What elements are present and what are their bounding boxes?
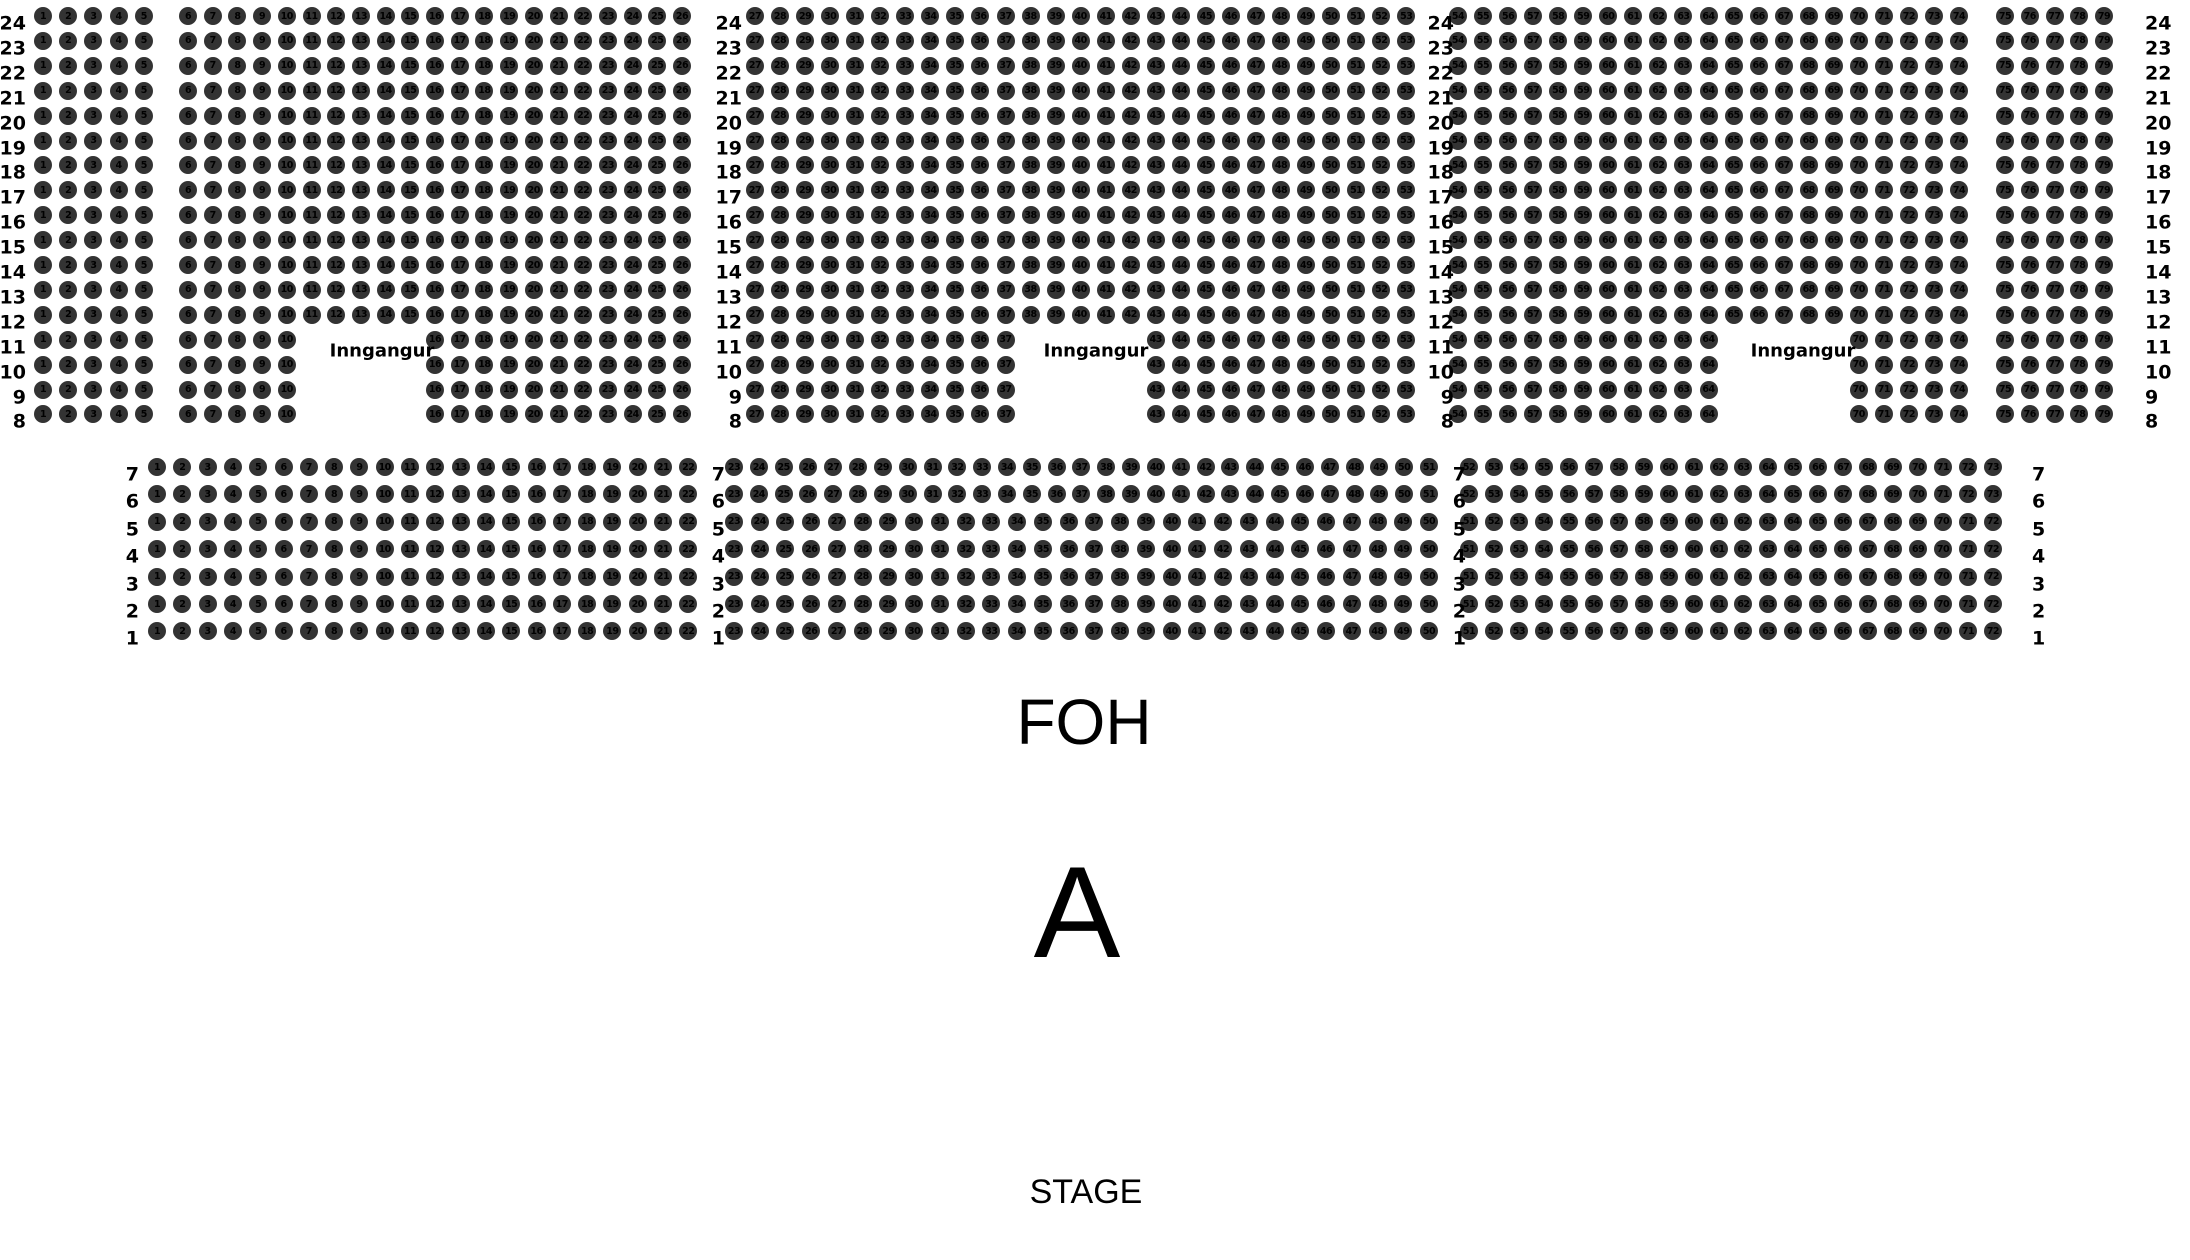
seat[interactable]: 18 [578, 568, 596, 586]
seat[interactable]: 24 [624, 156, 642, 174]
seat[interactable]: 31 [846, 32, 864, 50]
seat[interactable]: 50 [1322, 256, 1340, 274]
seat[interactable]: 62 [1734, 540, 1752, 558]
seat[interactable]: 5 [135, 57, 153, 75]
seat[interactable]: 77 [2046, 405, 2064, 423]
seat[interactable]: 23 [599, 306, 617, 324]
seat[interactable]: 11 [303, 231, 321, 249]
seat[interactable]: 43 [1147, 405, 1165, 423]
seat[interactable]: 62 [1649, 181, 1667, 199]
seat[interactable]: 7 [300, 513, 318, 531]
seat[interactable]: 23 [725, 513, 743, 531]
seat[interactable]: 25 [776, 568, 794, 586]
seat[interactable]: 6 [179, 156, 197, 174]
seat[interactable]: 36 [1048, 458, 1066, 476]
seat[interactable]: 3 [84, 132, 102, 150]
seat[interactable]: 3 [199, 540, 217, 558]
seat[interactable]: 76 [2021, 7, 2039, 25]
seat[interactable]: 40 [1163, 568, 1181, 586]
seat[interactable]: 15 [401, 7, 419, 25]
seat[interactable]: 29 [796, 82, 814, 100]
seat[interactable]: 27 [828, 540, 846, 558]
seat[interactable]: 7 [204, 405, 222, 423]
seat[interactable]: 56 [1499, 156, 1517, 174]
seat[interactable]: 73 [1925, 82, 1943, 100]
seat[interactable]: 57 [1524, 405, 1542, 423]
seat[interactable]: 50 [1322, 381, 1340, 399]
seat[interactable]: 14 [377, 132, 395, 150]
seat[interactable]: 38 [1022, 107, 1040, 125]
seat[interactable]: 25 [648, 281, 666, 299]
seat[interactable]: 43 [1221, 458, 1239, 476]
seat[interactable]: 72 [1900, 32, 1918, 50]
seat[interactable]: 73 [1925, 206, 1943, 224]
seat[interactable]: 49 [1297, 32, 1315, 50]
seat[interactable]: 53 [1510, 568, 1528, 586]
seat[interactable]: 43 [1240, 622, 1258, 640]
seat[interactable]: 28 [771, 156, 789, 174]
seat[interactable]: 17 [553, 513, 571, 531]
seat[interactable]: 27 [746, 32, 764, 50]
seat[interactable]: 29 [796, 356, 814, 374]
seat[interactable]: 26 [673, 381, 691, 399]
seat[interactable]: 45 [1271, 485, 1289, 503]
seat[interactable]: 17 [553, 458, 571, 476]
seat[interactable]: 24 [624, 405, 642, 423]
seat[interactable]: 71 [1875, 206, 1893, 224]
seat[interactable]: 65 [1725, 231, 1743, 249]
seat[interactable]: 7 [204, 32, 222, 50]
seat[interactable]: 69 [1825, 281, 1843, 299]
seat[interactable]: 47 [1247, 231, 1265, 249]
seat[interactable]: 33 [982, 568, 1000, 586]
seat[interactable]: 72 [1900, 206, 1918, 224]
seat[interactable]: 35 [946, 82, 964, 100]
seat[interactable]: 13 [352, 32, 370, 50]
seat[interactable]: 52 [1485, 595, 1503, 613]
seat[interactable]: 73 [1925, 181, 1943, 199]
seat[interactable]: 5 [249, 513, 267, 531]
seat[interactable]: 60 [1599, 231, 1617, 249]
seat[interactable]: 40 [1072, 306, 1090, 324]
seat[interactable]: 51 [1347, 82, 1365, 100]
seat[interactable]: 53 [1510, 595, 1528, 613]
seat[interactable]: 29 [796, 156, 814, 174]
seat[interactable]: 1 [148, 513, 166, 531]
seat[interactable]: 47 [1321, 458, 1339, 476]
seat[interactable]: 34 [921, 331, 939, 349]
seat[interactable]: 14 [377, 57, 395, 75]
seat[interactable]: 49 [1297, 181, 1315, 199]
seat[interactable]: 63 [1674, 306, 1692, 324]
seat[interactable]: 76 [2021, 231, 2039, 249]
seat[interactable]: 14 [377, 156, 395, 174]
seat[interactable]: 6 [275, 595, 293, 613]
seat[interactable]: 56 [1499, 82, 1517, 100]
seat[interactable]: 24 [624, 7, 642, 25]
seat[interactable]: 44 [1266, 622, 1284, 640]
seat[interactable]: 30 [821, 57, 839, 75]
seat[interactable]: 43 [1147, 306, 1165, 324]
seat[interactable]: 23 [599, 331, 617, 349]
seat[interactable]: 36 [971, 306, 989, 324]
seat[interactable]: 6 [179, 356, 197, 374]
seat[interactable]: 63 [1674, 381, 1692, 399]
seat[interactable]: 21 [550, 231, 568, 249]
seat[interactable]: 30 [821, 405, 839, 423]
seat[interactable]: 10 [376, 513, 394, 531]
seat[interactable]: 9 [350, 595, 368, 613]
seat[interactable]: 33 [982, 595, 1000, 613]
seat[interactable]: 16 [528, 513, 546, 531]
seat[interactable]: 42 [1122, 181, 1140, 199]
seat[interactable]: 18 [475, 206, 493, 224]
seat[interactable]: 37 [1072, 458, 1090, 476]
seat[interactable]: 11 [401, 513, 419, 531]
seat[interactable]: 30 [821, 181, 839, 199]
seat[interactable]: 73 [1925, 256, 1943, 274]
seat[interactable]: 20 [629, 568, 647, 586]
seat[interactable]: 35 [946, 231, 964, 249]
seat[interactable]: 29 [796, 7, 814, 25]
seat[interactable]: 48 [1369, 568, 1387, 586]
seat[interactable]: 50 [1322, 405, 1340, 423]
seat[interactable]: 24 [751, 568, 769, 586]
seat[interactable]: 13 [352, 306, 370, 324]
seat[interactable]: 38 [1111, 568, 1129, 586]
seat[interactable]: 16 [426, 281, 444, 299]
seat[interactable]: 32 [871, 331, 889, 349]
seat[interactable]: 5 [249, 568, 267, 586]
seat[interactable]: 51 [1347, 306, 1365, 324]
seat[interactable]: 71 [1875, 132, 1893, 150]
seat[interactable]: 68 [1800, 57, 1818, 75]
seat[interactable]: 27 [746, 206, 764, 224]
seat[interactable]: 65 [1725, 256, 1743, 274]
seat[interactable]: 57 [1524, 231, 1542, 249]
seat[interactable]: 40 [1163, 595, 1181, 613]
seat[interactable]: 13 [352, 7, 370, 25]
seat[interactable]: 9 [350, 568, 368, 586]
seat[interactable]: 76 [2021, 356, 2039, 374]
seat[interactable]: 16 [426, 107, 444, 125]
seat[interactable]: 38 [1097, 458, 1115, 476]
seat[interactable]: 36 [971, 107, 989, 125]
seat[interactable]: 27 [746, 57, 764, 75]
seat[interactable]: 36 [971, 405, 989, 423]
seat[interactable]: 70 [1934, 622, 1952, 640]
seat[interactable]: 69 [1884, 485, 1902, 503]
seat[interactable]: 49 [1297, 281, 1315, 299]
seat[interactable]: 9 [253, 107, 271, 125]
seat[interactable]: 11 [401, 595, 419, 613]
seat[interactable]: 70 [1850, 381, 1868, 399]
seat[interactable]: 57 [1524, 306, 1542, 324]
seat[interactable]: 3 [84, 181, 102, 199]
seat[interactable]: 75 [1996, 256, 2014, 274]
seat[interactable]: 23 [599, 381, 617, 399]
seat[interactable]: 73 [1925, 306, 1943, 324]
seat[interactable]: 46 [1222, 206, 1240, 224]
seat[interactable]: 37 [997, 181, 1015, 199]
seat[interactable]: 45 [1197, 82, 1215, 100]
seat[interactable]: 71 [1875, 356, 1893, 374]
seat[interactable]: 26 [802, 595, 820, 613]
seat[interactable]: 74 [1950, 306, 1968, 324]
seat[interactable]: 58 [1635, 540, 1653, 558]
seat[interactable]: 79 [2095, 281, 2113, 299]
seat[interactable]: 43 [1147, 107, 1165, 125]
seat[interactable]: 49 [1394, 622, 1412, 640]
seat[interactable]: 27 [746, 156, 764, 174]
seat[interactable]: 79 [2095, 206, 2113, 224]
seat[interactable]: 3 [84, 7, 102, 25]
seat[interactable]: 33 [896, 132, 914, 150]
seat[interactable]: 79 [2095, 107, 2113, 125]
seat[interactable]: 17 [553, 568, 571, 586]
seat[interactable]: 25 [648, 7, 666, 25]
seat[interactable]: 9 [253, 281, 271, 299]
seat[interactable]: 36 [1060, 540, 1078, 558]
seat[interactable]: 61 [1624, 256, 1642, 274]
seat[interactable]: 31 [924, 458, 942, 476]
seat[interactable]: 55 [1474, 32, 1492, 50]
seat[interactable]: 22 [574, 381, 592, 399]
seat[interactable]: 50 [1322, 7, 1340, 25]
seat[interactable]: 4 [224, 513, 242, 531]
seat[interactable]: 5 [249, 458, 267, 476]
seat[interactable]: 37 [997, 256, 1015, 274]
seat[interactable]: 37 [997, 156, 1015, 174]
seat[interactable]: 8 [228, 82, 246, 100]
seat[interactable]: 57 [1524, 381, 1542, 399]
seat[interactable]: 2 [59, 206, 77, 224]
seat[interactable]: 3 [84, 57, 102, 75]
seat[interactable]: 11 [401, 540, 419, 558]
seat[interactable]: 78 [2070, 32, 2088, 50]
seat[interactable]: 15 [502, 485, 520, 503]
seat[interactable]: 54 [1510, 485, 1528, 503]
seat[interactable]: 48 [1272, 356, 1290, 374]
seat[interactable]: 25 [648, 381, 666, 399]
seat[interactable]: 39 [1137, 595, 1155, 613]
seat[interactable]: 63 [1674, 156, 1692, 174]
seat[interactable]: 75 [1996, 82, 2014, 100]
seat[interactable]: 22 [574, 405, 592, 423]
seat[interactable]: 31 [846, 356, 864, 374]
seat[interactable]: 7 [204, 306, 222, 324]
seat[interactable]: 66 [1834, 622, 1852, 640]
seat[interactable]: 24 [750, 485, 768, 503]
seat[interactable]: 30 [821, 306, 839, 324]
seat[interactable]: 31 [846, 132, 864, 150]
seat[interactable]: 29 [796, 256, 814, 274]
seat[interactable]: 59 [1660, 622, 1678, 640]
seat[interactable]: 42 [1122, 231, 1140, 249]
seat[interactable]: 22 [679, 568, 697, 586]
seat[interactable]: 52 [1485, 568, 1503, 586]
seat[interactable]: 47 [1321, 485, 1339, 503]
seat[interactable]: 66 [1809, 485, 1827, 503]
seat[interactable]: 45 [1197, 156, 1215, 174]
seat[interactable]: 52 [1372, 331, 1390, 349]
seat[interactable]: 11 [303, 181, 321, 199]
seat[interactable]: 20 [525, 306, 543, 324]
seat[interactable]: 61 [1710, 540, 1728, 558]
seat[interactable]: 13 [352, 181, 370, 199]
seat[interactable]: 66 [1834, 568, 1852, 586]
seat[interactable]: 75 [1996, 381, 2014, 399]
seat[interactable]: 48 [1272, 181, 1290, 199]
seat[interactable]: 64 [1700, 82, 1718, 100]
seat[interactable]: 56 [1499, 306, 1517, 324]
seat[interactable]: 20 [525, 281, 543, 299]
seat[interactable]: 68 [1800, 7, 1818, 25]
seat[interactable]: 6 [179, 405, 197, 423]
seat[interactable]: 43 [1147, 281, 1165, 299]
seat[interactable]: 69 [1825, 206, 1843, 224]
seat[interactable]: 16 [426, 306, 444, 324]
seat[interactable]: 36 [971, 82, 989, 100]
seat[interactable]: 24 [624, 206, 642, 224]
seat[interactable]: 68 [1884, 568, 1902, 586]
seat[interactable]: 73 [1984, 485, 2002, 503]
seat[interactable]: 66 [1834, 513, 1852, 531]
seat[interactable]: 43 [1147, 206, 1165, 224]
seat[interactable]: 4 [110, 306, 128, 324]
seat[interactable]: 23 [599, 231, 617, 249]
seat[interactable]: 7 [204, 181, 222, 199]
seat[interactable]: 25 [775, 485, 793, 503]
seat[interactable]: 57 [1585, 485, 1603, 503]
seat[interactable]: 25 [648, 306, 666, 324]
seat[interactable]: 53 [1397, 331, 1415, 349]
seat[interactable]: 35 [946, 306, 964, 324]
seat[interactable]: 76 [2021, 206, 2039, 224]
seat[interactable]: 32 [871, 281, 889, 299]
seat[interactable]: 19 [603, 595, 621, 613]
seat[interactable]: 44 [1172, 405, 1190, 423]
seat[interactable]: 23 [599, 281, 617, 299]
seat[interactable]: 72 [1900, 57, 1918, 75]
seat[interactable]: 60 [1599, 82, 1617, 100]
seat[interactable]: 21 [550, 57, 568, 75]
seat[interactable]: 67 [1859, 568, 1877, 586]
seat[interactable]: 3 [84, 281, 102, 299]
seat[interactable]: 39 [1047, 156, 1065, 174]
seat[interactable]: 32 [871, 32, 889, 50]
seat[interactable]: 68 [1800, 82, 1818, 100]
seat[interactable]: 9 [350, 513, 368, 531]
seat[interactable]: 35 [946, 405, 964, 423]
seat[interactable]: 51 [1347, 281, 1365, 299]
seat[interactable]: 2 [59, 57, 77, 75]
seat[interactable]: 39 [1047, 82, 1065, 100]
seat[interactable]: 1 [34, 331, 52, 349]
seat[interactable]: 24 [624, 356, 642, 374]
seat[interactable]: 26 [802, 513, 820, 531]
seat[interactable]: 34 [998, 458, 1016, 476]
seat[interactable]: 1 [34, 107, 52, 125]
seat[interactable]: 9 [253, 57, 271, 75]
seat[interactable]: 8 [228, 132, 246, 150]
seat[interactable]: 22 [574, 356, 592, 374]
seat[interactable]: 55 [1474, 7, 1492, 25]
seat[interactable]: 72 [1900, 231, 1918, 249]
seat[interactable]: 70 [1934, 595, 1952, 613]
seat[interactable]: 43 [1240, 513, 1258, 531]
seat[interactable]: 41 [1188, 568, 1206, 586]
seat[interactable]: 30 [905, 513, 923, 531]
seat[interactable]: 53 [1397, 82, 1415, 100]
seat[interactable]: 34 [998, 485, 1016, 503]
seat[interactable]: 9 [253, 381, 271, 399]
seat[interactable]: 69 [1909, 513, 1927, 531]
seat[interactable]: 48 [1369, 540, 1387, 558]
seat[interactable]: 3 [84, 356, 102, 374]
seat[interactable]: 37 [997, 107, 1015, 125]
seat[interactable]: 73 [1925, 381, 1943, 399]
seat[interactable]: 48 [1272, 256, 1290, 274]
seat[interactable]: 67 [1834, 458, 1852, 476]
seat[interactable]: 25 [648, 132, 666, 150]
seat[interactable]: 55 [1560, 568, 1578, 586]
seat[interactable]: 59 [1574, 356, 1592, 374]
seat[interactable]: 63 [1674, 107, 1692, 125]
seat[interactable]: 10 [278, 107, 296, 125]
seat[interactable]: 8 [228, 181, 246, 199]
seat[interactable]: 35 [946, 57, 964, 75]
seat[interactable]: 21 [550, 82, 568, 100]
seat[interactable]: 42 [1214, 513, 1232, 531]
seat[interactable]: 19 [500, 57, 518, 75]
seat[interactable]: 10 [278, 132, 296, 150]
seat[interactable]: 29 [796, 57, 814, 75]
seat[interactable]: 13 [352, 82, 370, 100]
seat[interactable]: 22 [679, 622, 697, 640]
seat[interactable]: 57 [1610, 568, 1628, 586]
seat[interactable]: 59 [1574, 231, 1592, 249]
seat[interactable]: 39 [1137, 513, 1155, 531]
seat[interactable]: 31 [846, 57, 864, 75]
seat[interactable]: 13 [352, 156, 370, 174]
seat[interactable]: 51 [1347, 231, 1365, 249]
seat[interactable]: 73 [1984, 458, 2002, 476]
seat[interactable]: 34 [1008, 540, 1026, 558]
seat[interactable]: 33 [896, 381, 914, 399]
seat[interactable]: 23 [599, 356, 617, 374]
seat[interactable]: 37 [997, 206, 1015, 224]
seat[interactable]: 12 [327, 181, 345, 199]
seat[interactable]: 44 [1172, 281, 1190, 299]
seat[interactable]: 21 [654, 458, 672, 476]
seat[interactable]: 6 [179, 32, 197, 50]
seat[interactable]: 52 [1485, 540, 1503, 558]
seat[interactable]: 48 [1272, 57, 1290, 75]
seat[interactable]: 71 [1959, 622, 1977, 640]
seat[interactable]: 48 [1272, 306, 1290, 324]
seat[interactable]: 44 [1172, 82, 1190, 100]
seat[interactable]: 37 [1085, 513, 1103, 531]
seat[interactable]: 61 [1685, 485, 1703, 503]
seat[interactable]: 6 [275, 485, 293, 503]
seat[interactable]: 3 [199, 568, 217, 586]
seat[interactable]: 52 [1372, 256, 1390, 274]
seat[interactable]: 19 [500, 405, 518, 423]
seat[interactable]: 69 [1909, 568, 1927, 586]
seat[interactable]: 13 [352, 57, 370, 75]
seat[interactable]: 10 [376, 540, 394, 558]
